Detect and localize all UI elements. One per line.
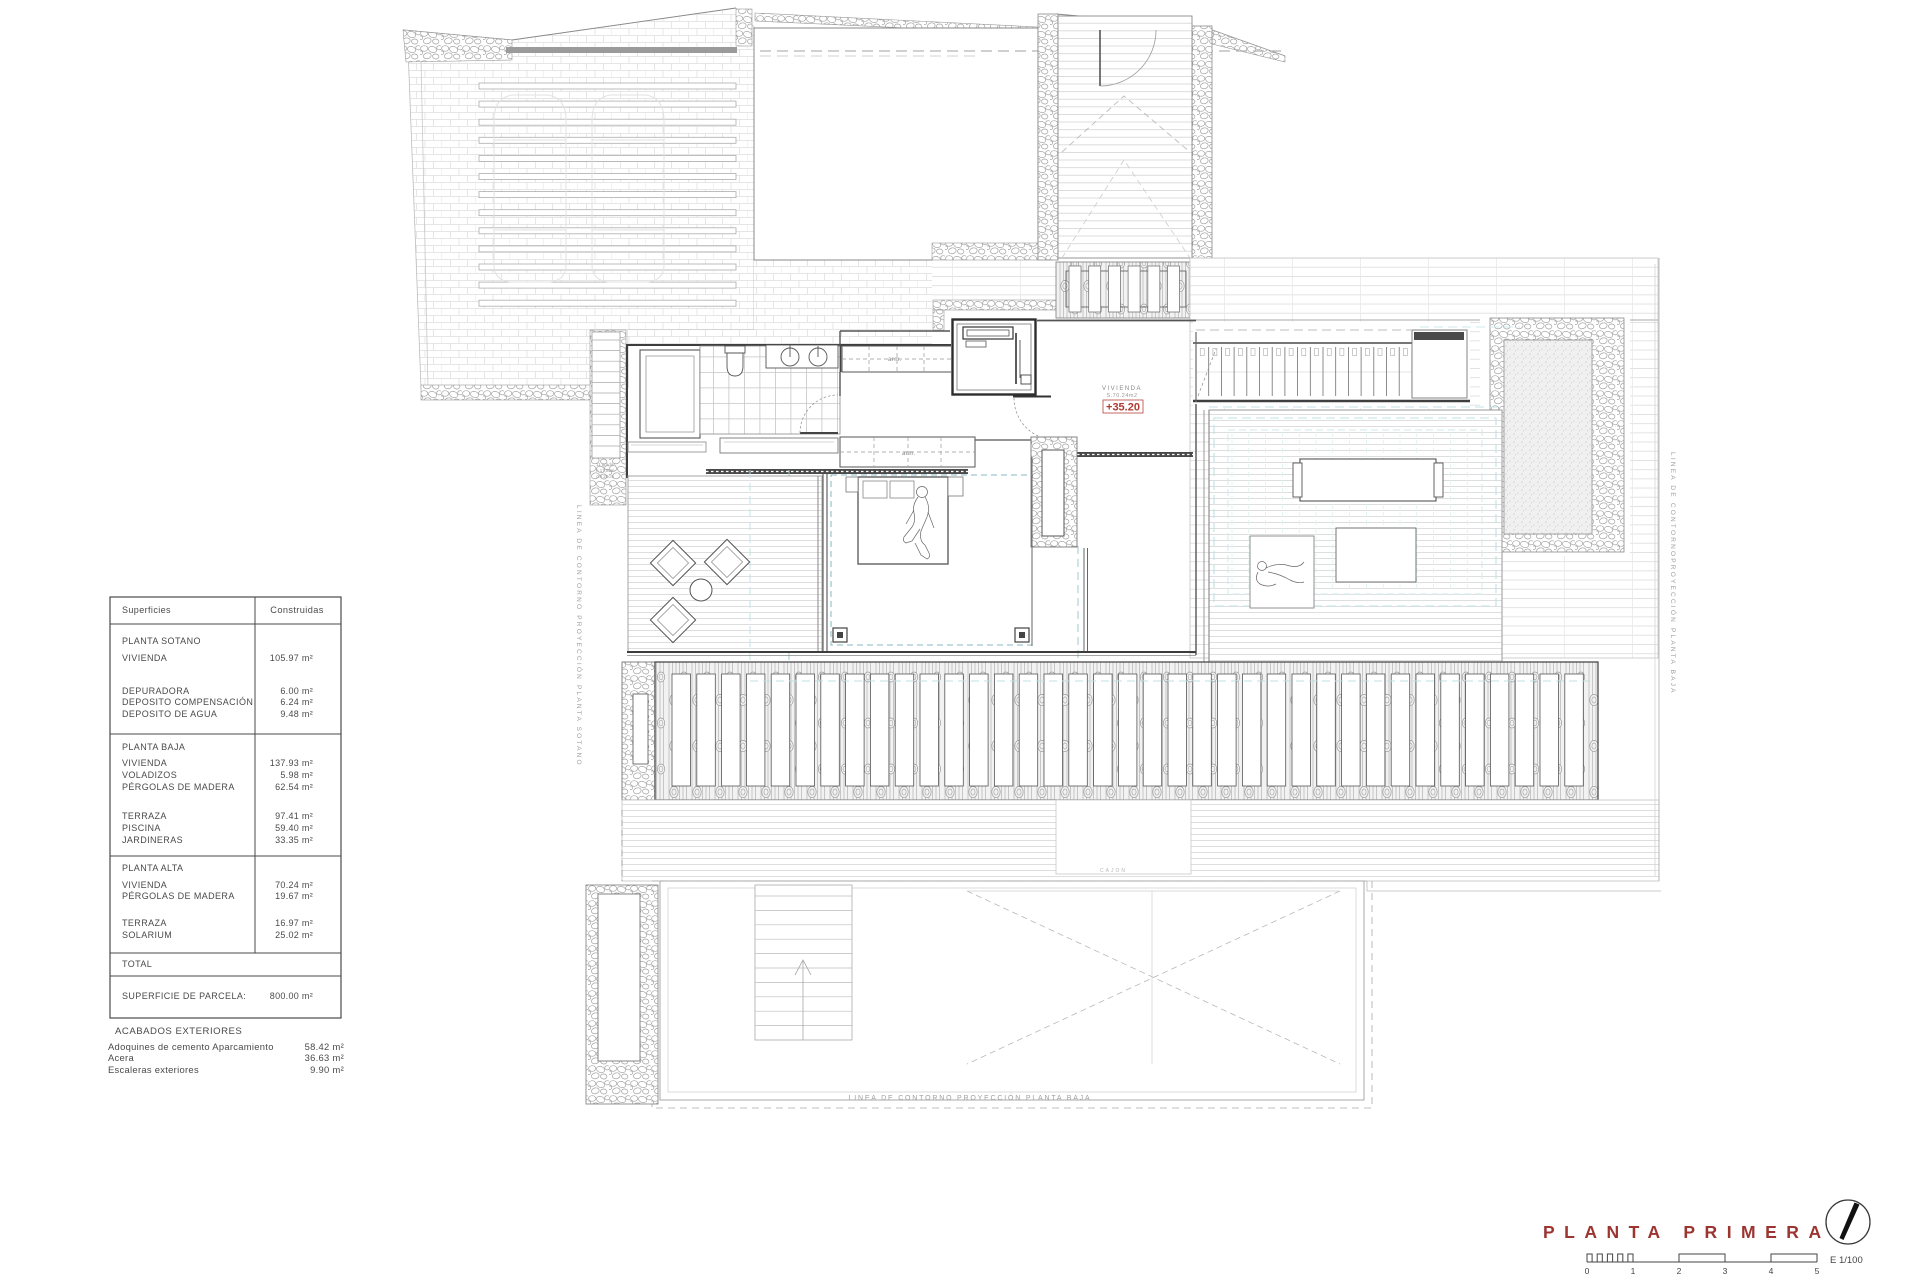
svg-text:0: 0	[1585, 1266, 1590, 1276]
svg-text:Acera: Acera	[108, 1052, 134, 1063]
svg-text:VOLADIZOS: VOLADIZOS	[122, 770, 177, 780]
svg-text:S.70.24m2: S.70.24m2	[1106, 393, 1137, 399]
svg-text:PISCINA: PISCINA	[122, 823, 161, 833]
svg-text:6.00 m²: 6.00 m²	[280, 686, 313, 696]
svg-text:137.93 m²: 137.93 m²	[270, 758, 313, 768]
svg-text:TERRAZA: TERRAZA	[122, 918, 167, 928]
svg-text:11 gradas: 11 gradas	[596, 462, 616, 467]
svg-text:70.24 m²: 70.24 m²	[275, 880, 313, 890]
svg-text:800.00 m²: 800.00 m²	[270, 991, 313, 1001]
svg-text:Escaleras exteriores: Escaleras exteriores	[108, 1064, 199, 1075]
svg-text:59.40 m²: 59.40 m²	[275, 823, 313, 833]
svg-text:9.90 m²: 9.90 m²	[310, 1064, 344, 1075]
svg-text:62.54 m²: 62.54 m²	[275, 782, 313, 792]
svg-text:arm.: arm.	[888, 357, 902, 363]
svg-text:VIVIENDA: VIVIENDA	[122, 880, 167, 890]
svg-text:PÉRGOLAS DE MADERA: PÉRGOLAS DE MADERA	[122, 782, 235, 792]
svg-text:PLANTA PRIMERA: PLANTA PRIMERA	[1543, 1222, 1831, 1242]
svg-text:DEPOSITO DE AGUA: DEPOSITO DE AGUA	[122, 709, 217, 719]
svg-text:PÉRGOLAS DE MADERA: PÉRGOLAS DE MADERA	[122, 891, 235, 901]
svg-text:9.48 m²: 9.48 m²	[280, 709, 313, 719]
svg-text:PLANTA BAJA: PLANTA BAJA	[122, 742, 185, 752]
svg-text:33.35 m²: 33.35 m²	[275, 835, 313, 845]
svg-text:LINEA DE CONTORNO PROYECCIÓN P: LINEA DE CONTORNO PROYECCIÓN PLANTA BAJA	[849, 1093, 1092, 1102]
svg-text:6.24 m²: 6.24 m²	[280, 697, 313, 707]
svg-text:SUPERFICIE DE PARCELA:: SUPERFICIE DE PARCELA:	[122, 991, 246, 1001]
svg-text:PLANTA ALTA: PLANTA ALTA	[122, 863, 183, 873]
svg-text:CAJON: CAJON	[1100, 868, 1127, 874]
svg-text:5.98 m²: 5.98 m²	[280, 770, 313, 780]
svg-text:4: 4	[1769, 1266, 1774, 1276]
svg-text:E 1/100: E 1/100	[1830, 1255, 1863, 1266]
svg-text:VIVIENDA: VIVIENDA	[122, 758, 167, 768]
svg-text:Superficies: Superficies	[122, 605, 171, 615]
svg-text:+35.20: +35.20	[1106, 402, 1140, 414]
svg-text:97.41 m²: 97.41 m²	[275, 811, 313, 821]
svg-text:VIVIENDA: VIVIENDA	[1102, 386, 1142, 392]
svg-text:DEPURADORA: DEPURADORA	[122, 686, 190, 696]
svg-text:Adoquines de cemento Aparcamie: Adoquines de cemento Aparcamiento	[108, 1041, 274, 1052]
svg-text:h.17,5cm: h.17,5cm	[596, 468, 615, 473]
svg-text:2: 2	[1677, 1266, 1682, 1276]
svg-text:3: 3	[1723, 1266, 1728, 1276]
svg-text:1: 1	[1631, 1266, 1636, 1276]
svg-text:58.42 m²: 58.42 m²	[305, 1041, 344, 1052]
svg-text:arm.: arm.	[902, 451, 916, 457]
svg-text:16.97 m²: 16.97 m²	[275, 918, 313, 928]
svg-text:105.97 m²: 105.97 m²	[270, 653, 313, 663]
svg-text:TERRAZA: TERRAZA	[122, 811, 167, 821]
svg-text:VIVIENDA: VIVIENDA	[122, 653, 167, 663]
svg-text:19.67 m²: 19.67 m²	[275, 891, 313, 901]
svg-text:36.63 m²: 36.63 m²	[305, 1052, 344, 1063]
svg-text:25.02 m²: 25.02 m²	[275, 930, 313, 940]
svg-text:LINEA DE CONTORNOPROYECCIÓN PL: LINEA DE CONTORNOPROYECCIÓN PLANTA BAJA	[1669, 452, 1678, 695]
svg-text:PLANTA SOTANO: PLANTA SOTANO	[122, 636, 201, 646]
svg-text:ACABADOS EXTERIORES: ACABADOS EXTERIORES	[115, 1026, 242, 1037]
svg-text:Construidas: Construidas	[270, 605, 323, 615]
svg-text:c/h 28cm: c/h 28cm	[596, 474, 615, 479]
svg-text:DEPOSITO COMPENSACIÓN: DEPOSITO COMPENSACIÓN	[122, 697, 253, 707]
svg-text:TOTAL: TOTAL	[122, 959, 152, 969]
svg-text:LINEA DE CONTORNO PROYECCIÓN P: LINEA DE CONTORNO PROYECCIÓN PLANTA SOTA…	[575, 505, 584, 767]
svg-text:SOLARIUM: SOLARIUM	[122, 930, 172, 940]
svg-text:JARDINERAS: JARDINERAS	[122, 835, 183, 845]
svg-text:5: 5	[1815, 1266, 1820, 1276]
